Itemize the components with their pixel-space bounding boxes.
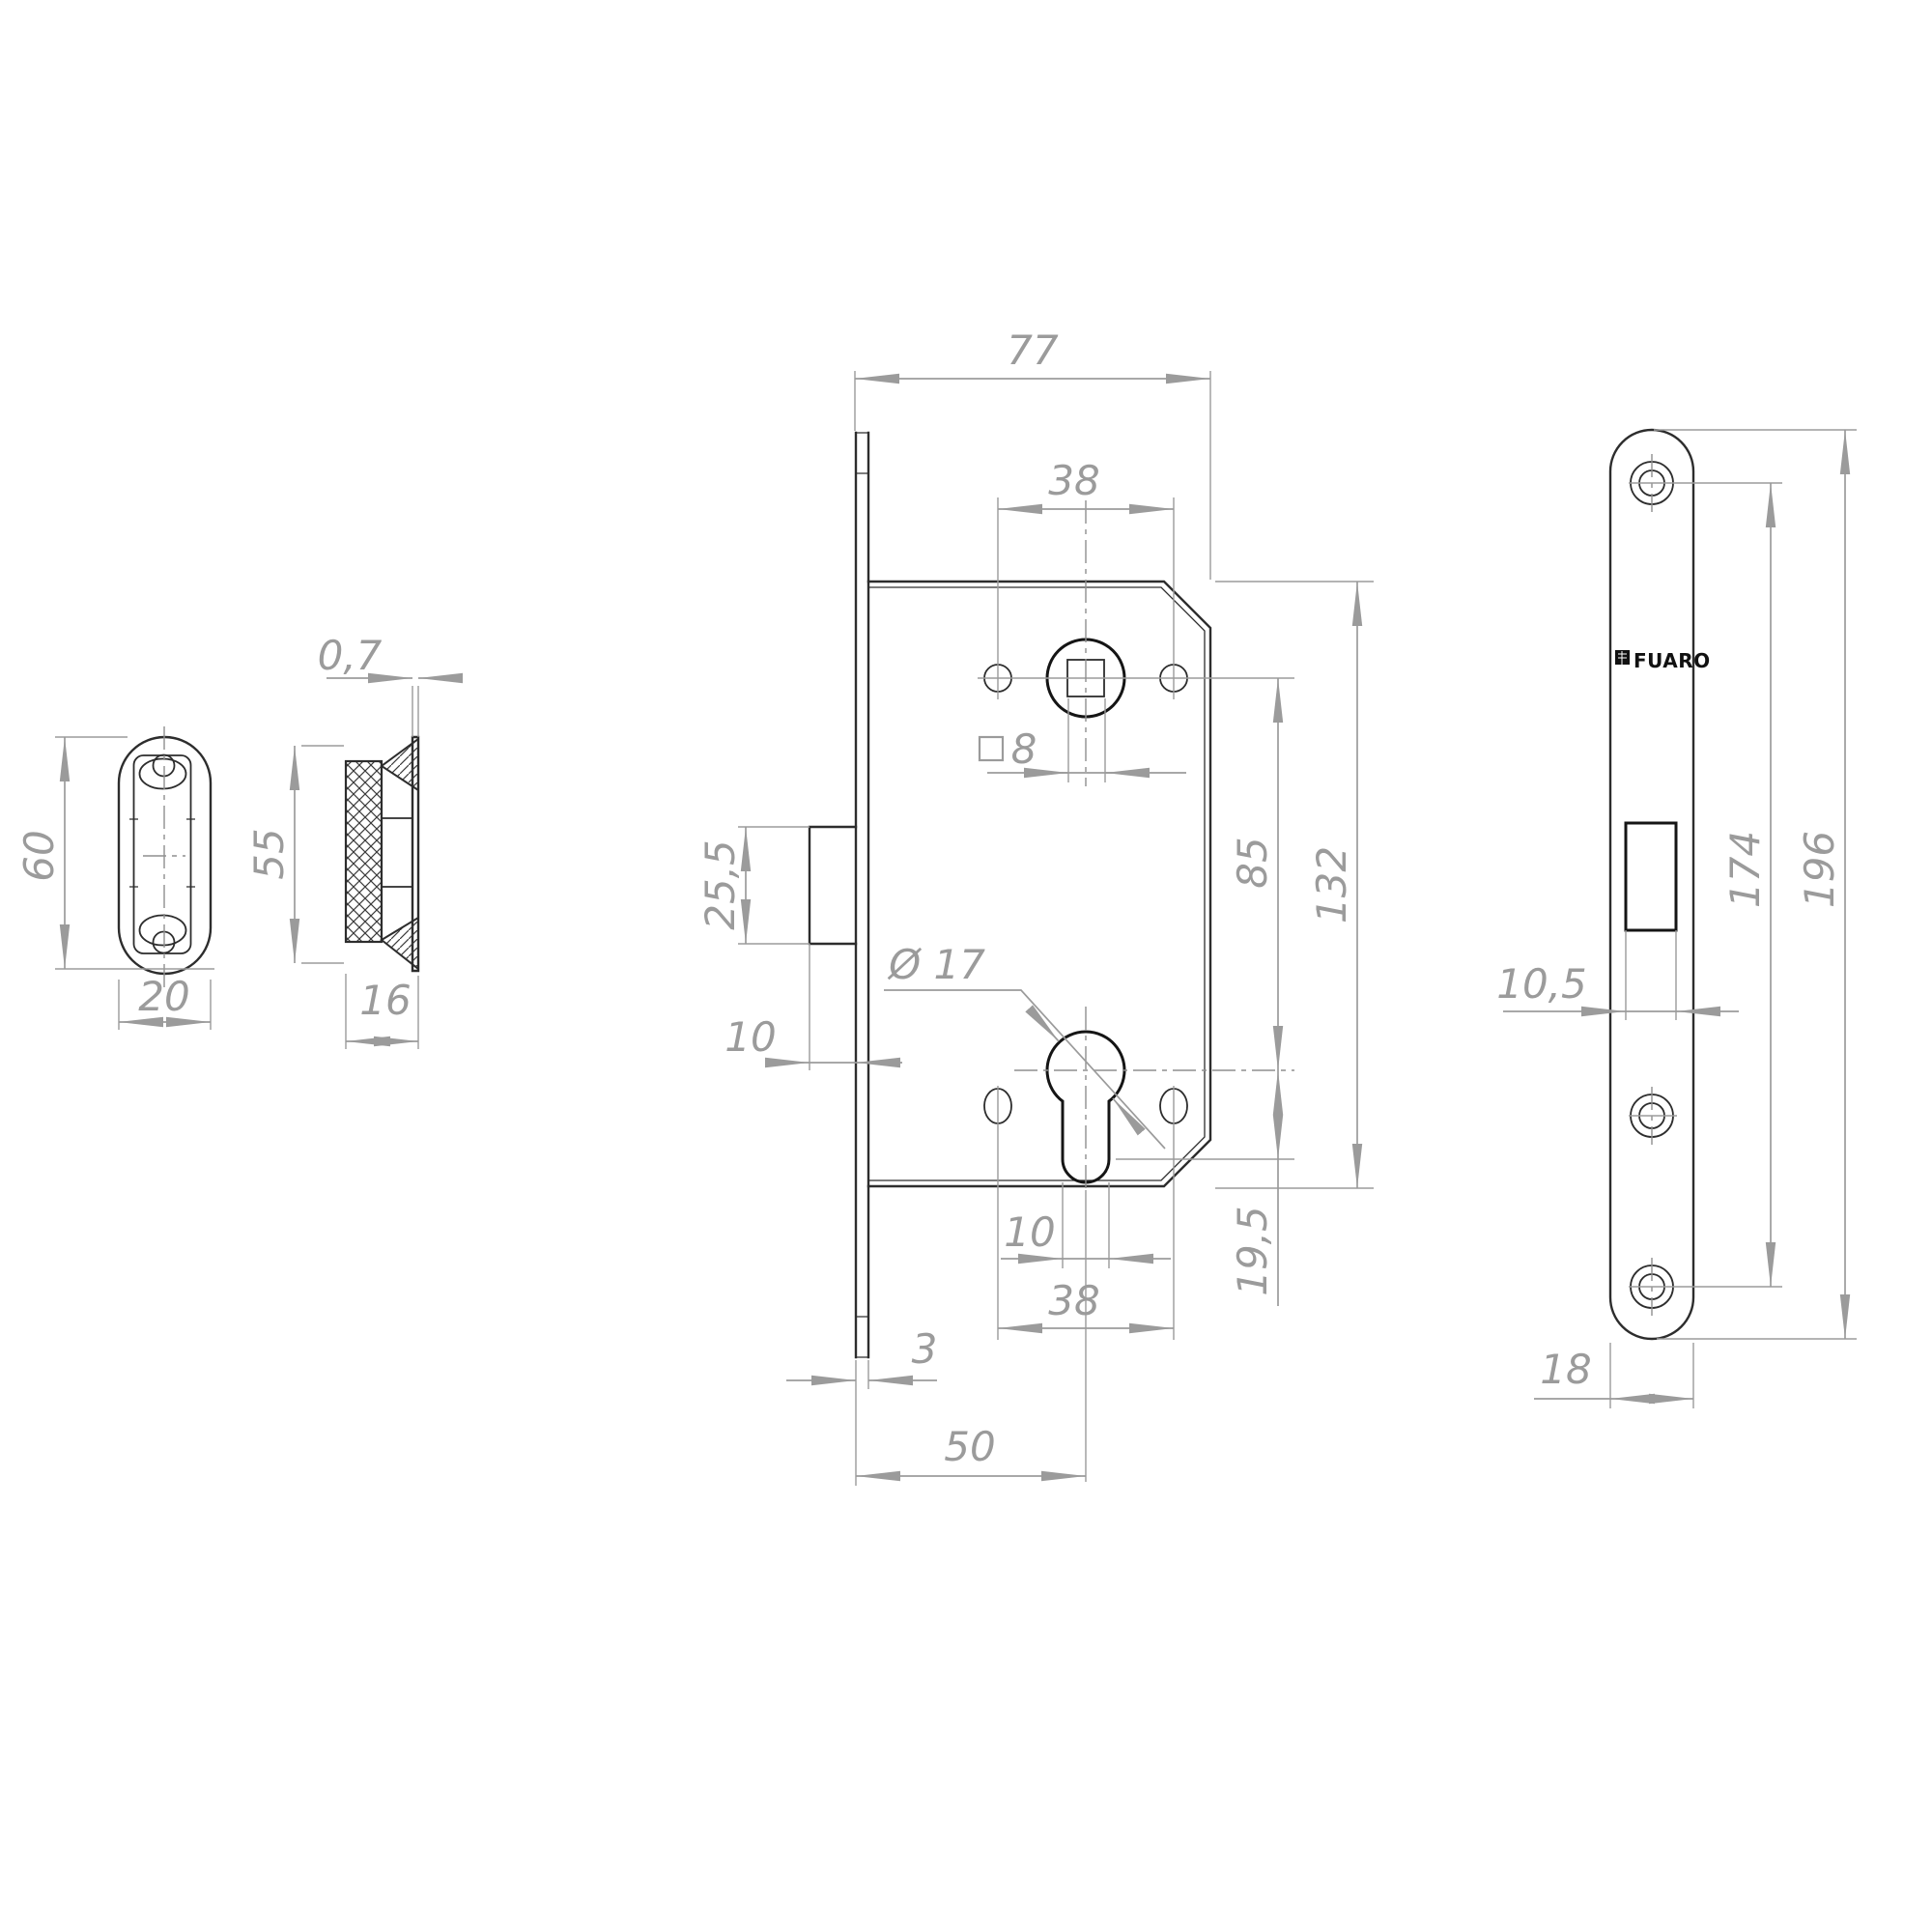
strike-body-crosshatched [346,761,382,942]
dim-label-faceplate-width: 18 [1540,1346,1591,1393]
dim-label-spindle-to-cylinder: 85 [1229,837,1276,888]
brand-logo-text: FUARO [1634,649,1711,672]
dim-label-backset: 50 [944,1423,995,1470]
dim-label-lip-thickness: 0,7 [318,632,383,679]
dim-label-faceplate-length: 196 [1796,831,1843,908]
dim-latch-height: 25,5 [696,827,746,944]
dim-label-strike-side-height: 55 [245,828,293,879]
dim-label-stem-width: 10 [1004,1208,1055,1256]
technical-drawing: 60 20 0,7 55 16 [0,0,1932,1932]
dim-label-strike-depth: 16 [359,977,411,1024]
dim-label-cylinder-bottom-offset: 19,5 [1229,1206,1276,1296]
dim-label-cylinder-holes-spacing: 38 [1048,1277,1099,1324]
dim-label-cylinder-diameter: Ø 17 [887,941,985,988]
dim-label-strike-width: 20 [138,973,189,1020]
dim-label-latch-slot-width: 10,5 [1496,960,1587,1008]
drawing-sheet: 60 20 0,7 55 16 [0,0,1932,1932]
dim-label-latch-protrusion: 10 [724,1013,776,1061]
dim-label-body-height: 132 [1308,846,1355,923]
dim-label-spindle-square: 8 [1011,725,1037,773]
dim-label-body-width: 77 [1007,327,1059,374]
dim-label-latch-height: 25,5 [696,839,744,930]
dim-label-faceplate-thickness: 3 [912,1325,938,1373]
dim-label-strike-height: 60 [15,830,63,881]
dim-label-screw-spacing: 174 [1721,831,1769,908]
dim-label-handle-holes-spacing: 38 [1048,457,1099,504]
